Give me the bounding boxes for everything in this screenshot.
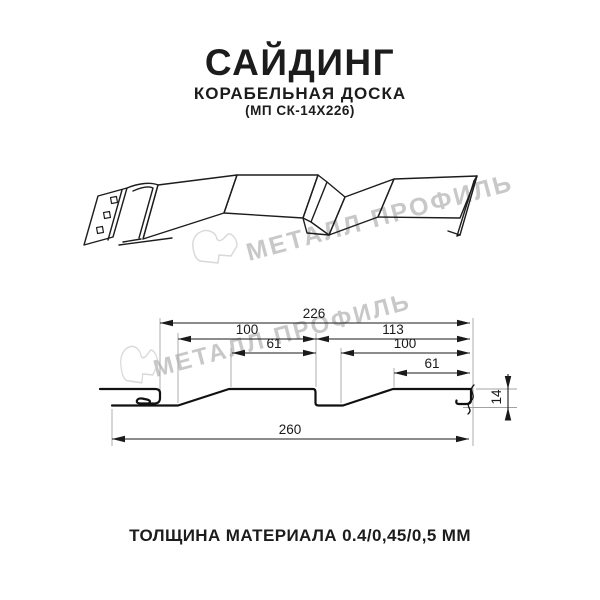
dim-113: 113	[382, 322, 404, 337]
watermark-upper: МЕТАЛЛ ПРОФИЛЬ	[193, 169, 517, 267]
dim-100-left: 100	[236, 322, 259, 337]
dim-100-right: 100	[394, 336, 417, 351]
dim-61-left: 61	[266, 336, 281, 351]
dim-61-right: 61	[424, 356, 439, 371]
watermark-text: МЕТАЛЛ ПРОФИЛЬ	[151, 288, 415, 383]
drawing-canvas: МЕТАЛЛ ПРОФИЛЬ МЕТАЛЛ ПРОФИЛЬ	[0, 0, 600, 600]
dim-226: 226	[303, 306, 326, 321]
section-profile	[100, 385, 474, 414]
page: САЙДИНГ КОРАБЕЛЬНАЯ ДОСКА (МП СК-14Х226)…	[0, 0, 600, 600]
dim-260: 260	[279, 422, 302, 437]
dim-14: 14	[489, 389, 504, 405]
metall-profil-logo-icon	[193, 230, 237, 263]
thickness-label: ТОЛЩИНА МАТЕРИАЛА 0.4/0,45/0,5 ММ	[0, 526, 600, 546]
